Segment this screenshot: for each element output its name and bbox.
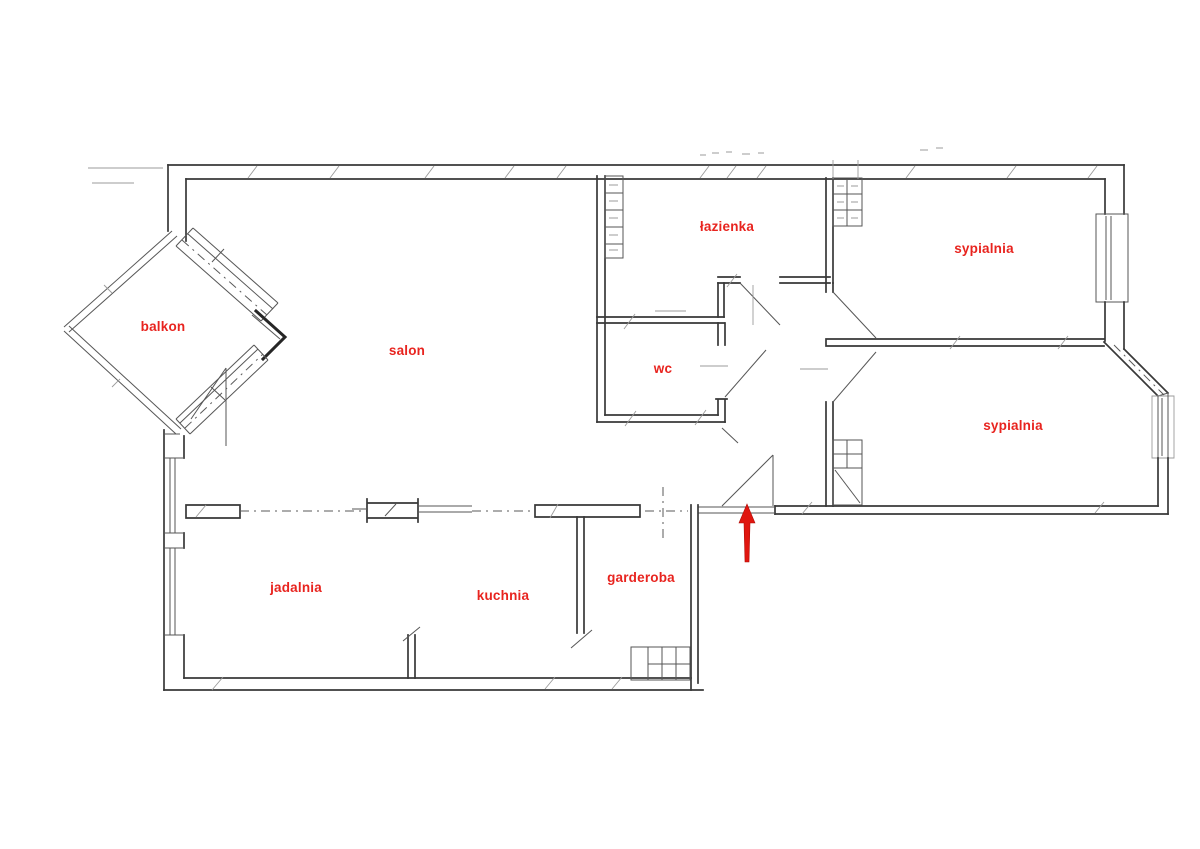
wall-hatch-ticks — [88, 148, 1104, 690]
room-label-salon: salon — [389, 343, 425, 358]
balcony-structure — [64, 228, 285, 446]
floor-plan-drawing: balkon salon łazienka sypialnia wc sypia… — [0, 0, 1200, 849]
entrance-door — [722, 455, 773, 506]
room-label-balkon: balkon — [141, 319, 186, 334]
floor-plan-page: balkon salon łazienka sypialnia wc sypia… — [0, 0, 1200, 849]
room-label-wc: wc — [653, 361, 673, 376]
room-label-sypialnia-2: sypialnia — [983, 418, 1043, 433]
room-label-lazienka: łazienka — [700, 219, 754, 234]
room-label-kuchnia: kuchnia — [477, 588, 530, 603]
bathroom-wc-walls — [597, 160, 862, 443]
room-label-sypialnia-1: sypialnia — [954, 241, 1014, 256]
room-label-garderoba: garderoba — [607, 570, 675, 585]
bedroom-walls — [700, 283, 1104, 506]
room-label-jadalnia: jadalnia — [269, 580, 322, 595]
